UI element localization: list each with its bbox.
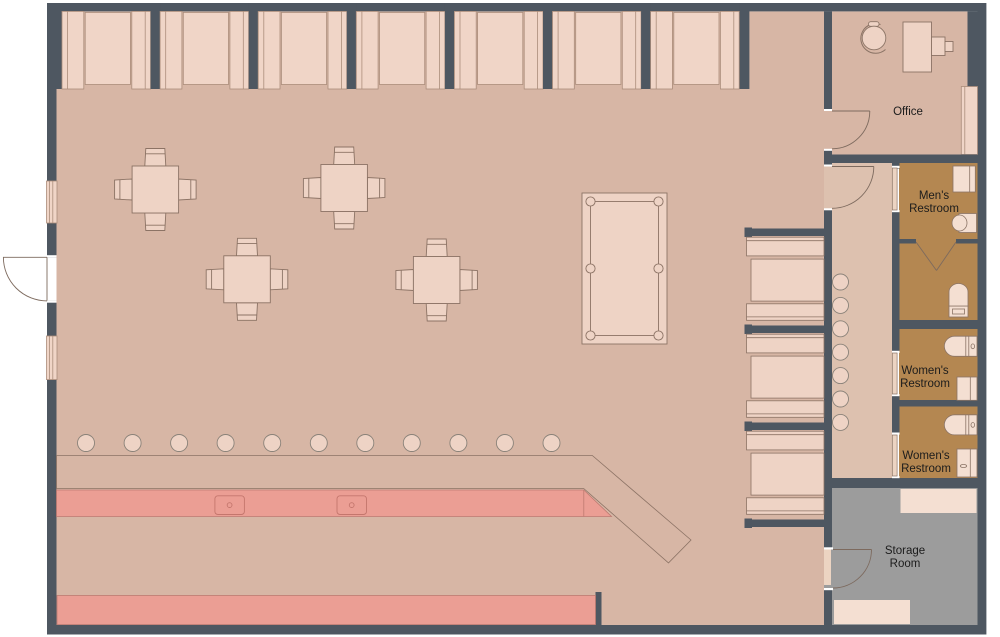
svg-text:Restroom: Restroom	[901, 463, 951, 475]
svg-text:Room: Room	[890, 558, 921, 570]
svg-text:Restroom: Restroom	[900, 378, 950, 390]
svg-text:Women's: Women's	[901, 365, 949, 377]
svg-text:Women's: Women's	[902, 450, 950, 462]
svg-text:Men's: Men's	[919, 190, 950, 202]
svg-text:Office: Office	[893, 106, 923, 118]
svg-text:Storage: Storage	[885, 545, 925, 557]
svg-text:Restroom: Restroom	[909, 203, 959, 215]
